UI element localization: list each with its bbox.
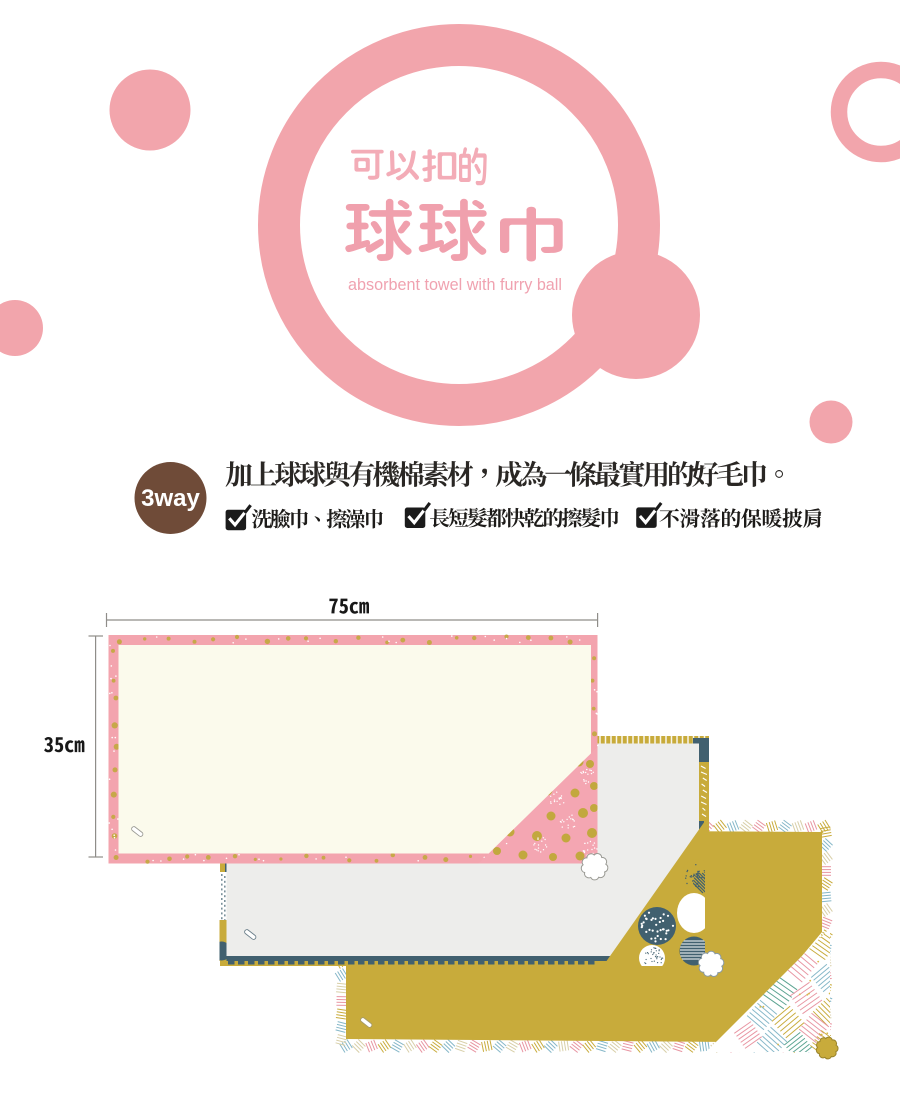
- svg-text:3way: 3way: [141, 485, 200, 512]
- svg-text:absorbent towel with furry bal: absorbent towel with furry ball: [348, 275, 562, 294]
